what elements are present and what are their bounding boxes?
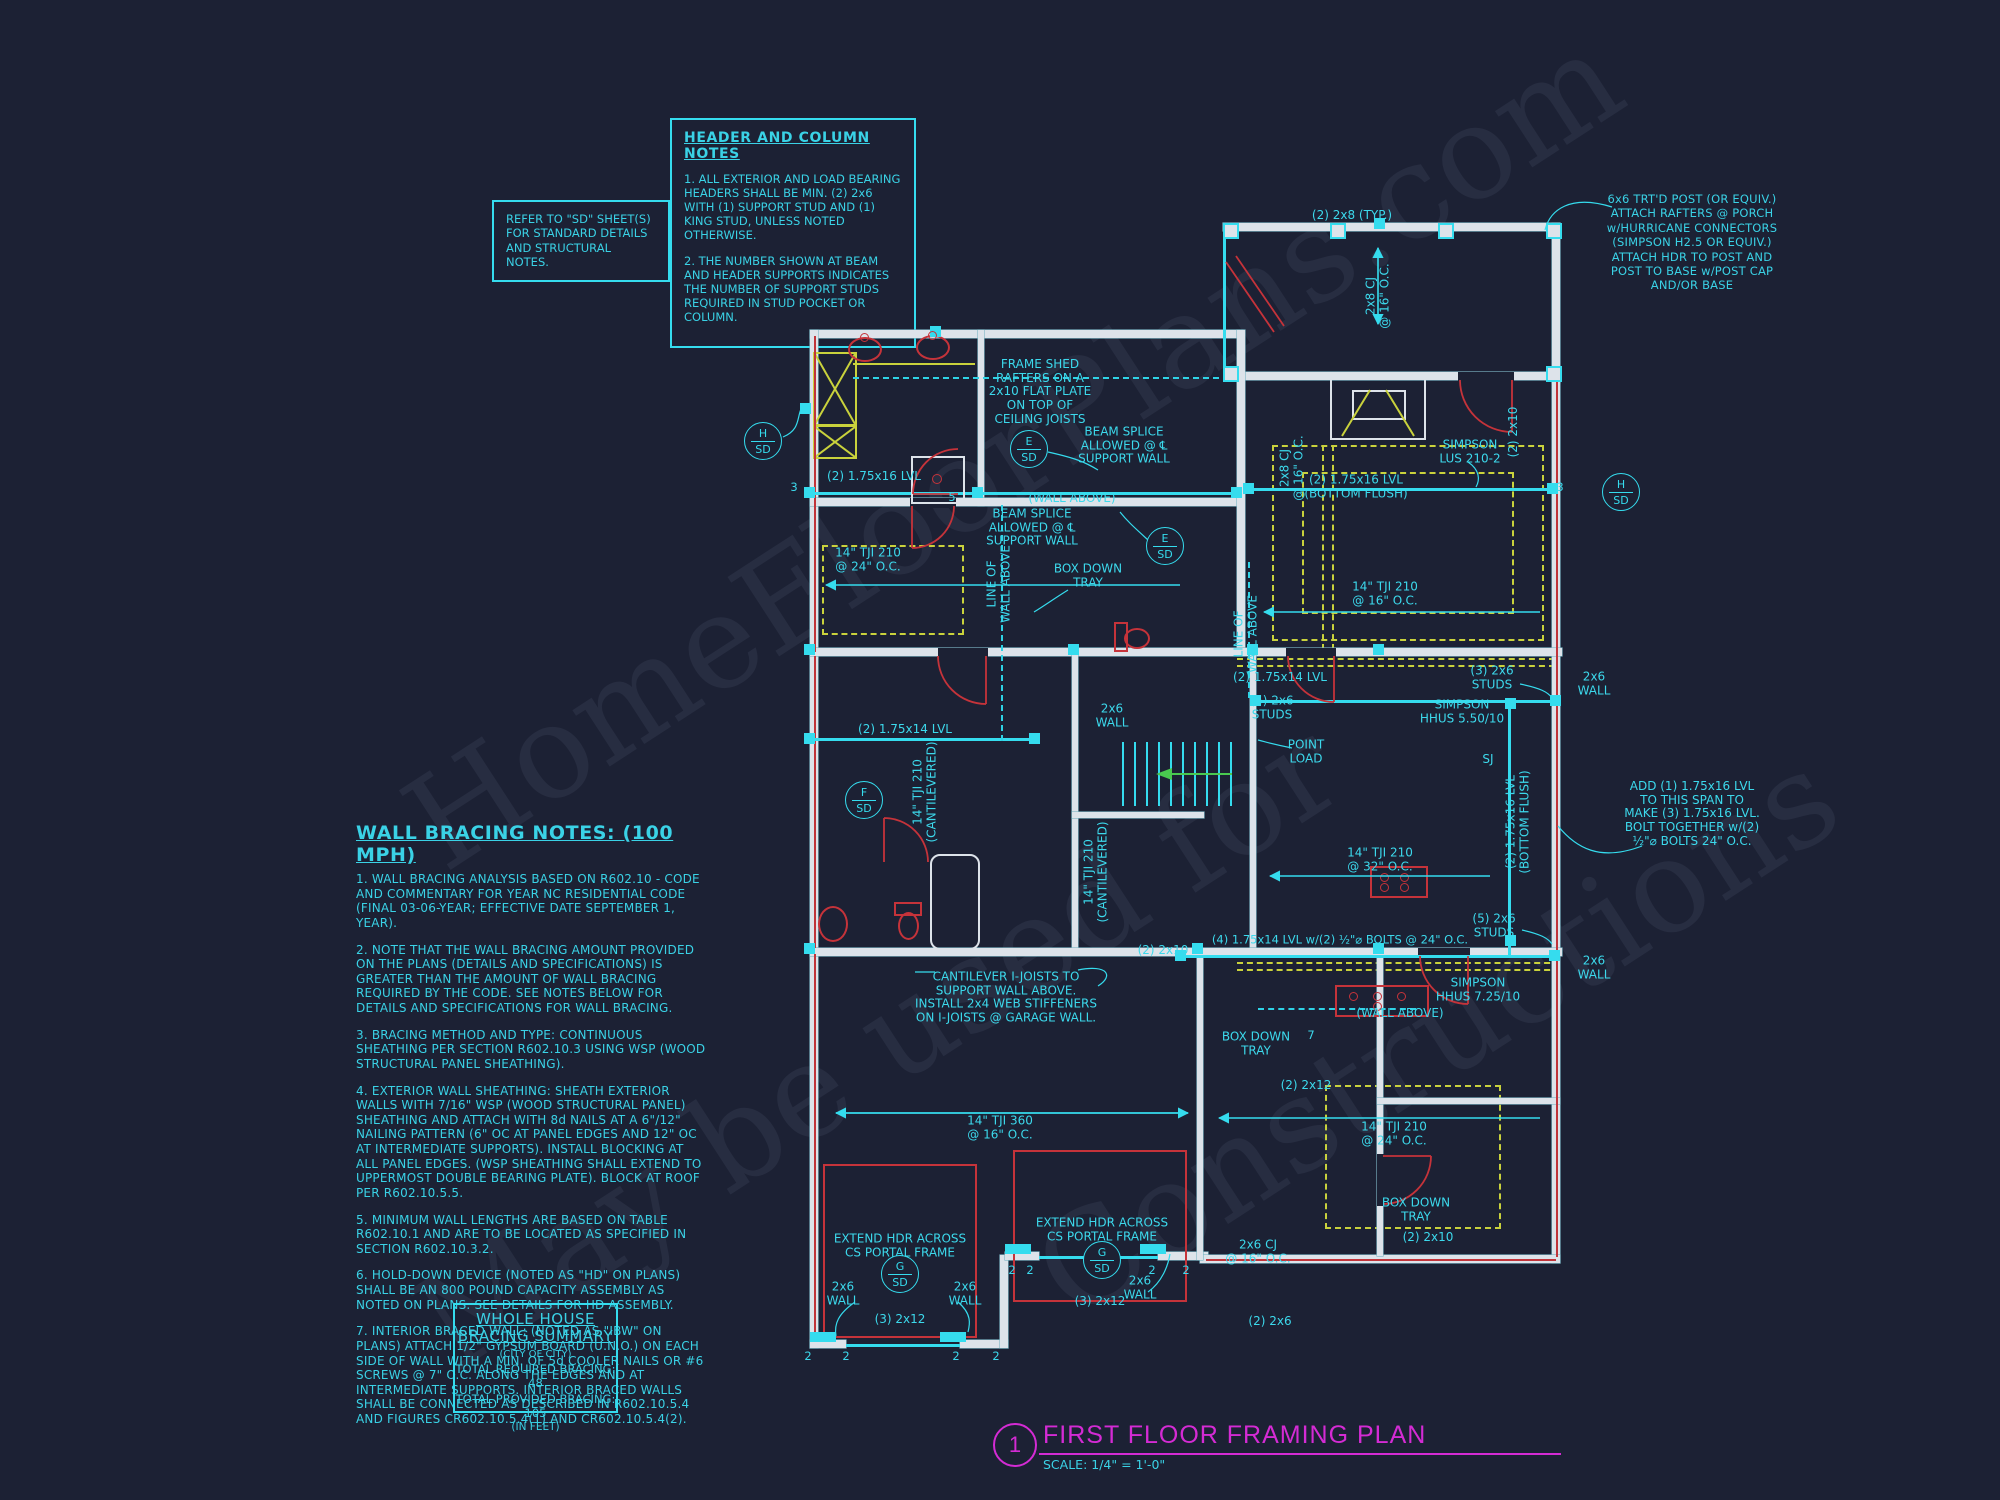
stud-count: 2: [1026, 1263, 1033, 1277]
plan-annotation: SIMPSON HHUS 5.50/10: [1420, 698, 1504, 725]
blueprint-page: { "colors":{"background":"#1c2134","cyan…: [0, 0, 2000, 1500]
stud-count: 2: [1182, 1263, 1189, 1277]
plan-annotation: (2) 2x10: [1507, 407, 1521, 458]
sheet-ref: SD: [1094, 1262, 1109, 1275]
detail-letter: G: [882, 1261, 918, 1272]
plan-annotation: POINT LOAD: [1288, 738, 1325, 765]
plan-annotation: (3) 2x6 STUDS: [1470, 664, 1513, 691]
stud-count: 7: [1307, 1028, 1314, 1042]
plan-annotation: FRAME SHED RAFTERS ON A 2x10 FLAT PLATE …: [989, 358, 1092, 426]
sheet-ref: SD: [856, 802, 871, 815]
plan-annotation: BEAM SPLICE ALLOWED @ ℄ SUPPORT WALL: [1078, 425, 1170, 466]
detail-callout-bubble: HSD: [1602, 473, 1640, 511]
stud-count: 2: [952, 1349, 959, 1363]
plan-annotation: (3) 2x12: [1075, 1295, 1126, 1309]
detail-letter: E: [1147, 533, 1183, 544]
detail-letter: F: [846, 787, 882, 798]
detail-number-bubble: 1: [993, 1423, 1037, 1467]
detail-letter: H: [1603, 479, 1639, 490]
plan-annotation: 2x6 CJ @ 16" O.C.: [1225, 1238, 1290, 1265]
plan-annotation: (3) 2x12: [875, 1313, 926, 1327]
detail-letter: H: [745, 428, 781, 439]
plan-annotation: 14" TJI 210 @ 32" O.C.: [1347, 846, 1413, 873]
plan-annotation: 14" TJI 210 @ 16" O.C.: [1352, 580, 1418, 607]
plan-annotation: (5) 2x6 STUDS: [1472, 912, 1515, 939]
detail-callout-bubble: ESD: [1010, 430, 1048, 468]
plan-annotation: SIMPSON HHUS 7.25/10: [1436, 976, 1520, 1003]
detail-letter: G: [1084, 1247, 1120, 1258]
plan-annotation: (2) 2x6: [1248, 1315, 1291, 1329]
sheet-ref: SD: [1021, 451, 1036, 464]
plan-annotation: (2) 2x10: [1138, 944, 1189, 958]
plan-annotation: (2) 1.75x16 LVL: [827, 470, 921, 484]
floor-plan: (2) 2x8 (TYP.)2x8 CJ @ 16" O.C.2x8 CJ @ …: [0, 0, 2000, 1500]
sheet-ref: SD: [1613, 494, 1628, 507]
plan-annotation: 14" TJI 210 @ 24" O.C.: [1361, 1120, 1427, 1147]
plan-annotation: (2) 1.75x16 LVL (BOTTOM FLUSH): [1304, 473, 1407, 500]
plan-annotation: 2x8 CJ @ 16" O.C.: [1278, 435, 1305, 500]
stud-count: 2: [992, 1349, 999, 1363]
stud-count: 3: [1556, 480, 1563, 494]
detail-callout-bubble: FSD: [845, 781, 883, 819]
stud-count: 2: [804, 1349, 811, 1363]
stud-count: 2: [1148, 1263, 1155, 1277]
detail-callout-bubble: GSD: [1083, 1241, 1121, 1279]
plan-annotation: 14" TJI 210 (CANTILEVERED): [911, 741, 938, 842]
plan-annotation: 2x6 WALL: [1096, 702, 1129, 729]
sheet-ref: SD: [892, 1276, 907, 1289]
title-underline: [1039, 1453, 1561, 1455]
plan-annotation: BOX DOWN TRAY: [1382, 1196, 1450, 1223]
stud-count: 5: [948, 490, 955, 504]
detail-callout-bubble: HSD: [744, 422, 782, 460]
sheet-ref: SD: [1157, 548, 1172, 561]
detail-callout-bubble: ESD: [1146, 527, 1184, 565]
detail-letter: E: [1011, 436, 1047, 447]
plan-annotation: (WALL ABOVE): [1356, 1007, 1443, 1021]
plan-annotation: (2) 2x8 (TYP.): [1312, 209, 1392, 223]
plan-annotation: SIMPSON LUS 210-2: [1439, 438, 1500, 465]
plan-annotation: 2x6 WALL: [1124, 1274, 1157, 1301]
plan-annotation: BOX DOWN TRAY: [1054, 562, 1122, 589]
page-title: FIRST FLOOR FRAMING PLAN: [1043, 1421, 1426, 1450]
plan-annotation: 2x6 WALL: [949, 1280, 982, 1307]
bubble-divider: [1017, 449, 1041, 450]
plan-annotation: (2) 2x12: [1281, 1079, 1332, 1093]
bubble-divider: [888, 1274, 912, 1275]
stud-count: 3: [790, 480, 797, 494]
door-swings: [884, 256, 1512, 1204]
plan-annotation: 2x6 WALL: [1578, 954, 1611, 981]
plan-annotation: CANTILEVER I-JOISTS TO SUPPORT WALL ABOV…: [915, 971, 1097, 1026]
plan-annotation: BOX DOWN TRAY: [1222, 1030, 1290, 1057]
bubble-divider: [1609, 492, 1633, 493]
plan-annotation: (WALL ABOVE): [1028, 492, 1115, 506]
plan-annotation: ADD (1) 1.75x16 LVL TO THIS SPAN TO MAKE…: [1624, 780, 1760, 848]
plan-annotation: 2x6 WALL: [1578, 670, 1611, 697]
bubble-divider: [852, 800, 876, 801]
plan-annotation: BEAM SPLICE ALLOWED @ ℄ SUPPORT WALL: [986, 507, 1078, 548]
plan-annotation: (2) 1.75x16 LVL (BOTTOM FLUSH): [1504, 770, 1531, 873]
plan-annotation: SJ: [1482, 753, 1493, 767]
stair-arrow: [1156, 768, 1232, 780]
scale-note: SCALE: 1/4" = 1'-0": [1043, 1457, 1165, 1472]
bubble-divider: [1153, 546, 1177, 547]
plan-linework: [0, 0, 2000, 1500]
plan-annotation: EXTEND HDR ACROSS CS PORTAL FRAME: [1036, 1216, 1168, 1243]
plan-annotation: LINE OF WALL ABOVE: [1232, 595, 1259, 673]
stud-count: 2: [1008, 1263, 1015, 1277]
bubble-divider: [1090, 1260, 1114, 1261]
bubble-divider: [751, 441, 775, 442]
plan-annotation: LINE OF WALL ABOVE: [985, 545, 1012, 623]
plan-annotation: (2) 1.75x14 LVL: [1233, 671, 1327, 685]
plan-annotation: 14" TJI 210 (CANTILEVERED): [1082, 821, 1109, 922]
plan-annotation: 2x8 CJ @ 16" O.C.: [1364, 263, 1391, 328]
sheet-ref: SD: [755, 443, 770, 456]
fireplace-flue-lines: [1342, 390, 1414, 436]
plan-annotation: 2x6 WALL: [827, 1280, 860, 1307]
stud-count: 2: [842, 1349, 849, 1363]
plan-annotation: (2) 2x10: [1403, 1231, 1454, 1245]
plan-annotation: (4) 1.75x14 LVL w/(2) ½"⌀ BOLTS @ 24" O.…: [1212, 933, 1468, 946]
plan-annotation: 14" TJI 210 @ 24" O.C.: [835, 546, 901, 573]
detail-callout-bubble: GSD: [881, 1255, 919, 1293]
plan-annotation: (5) 2x6 STUDS: [1250, 694, 1293, 721]
plan-annotation: 14" TJI 360 @ 16" O.C.: [967, 1114, 1033, 1141]
plan-annotation: (2) 1.75x14 LVL: [858, 723, 952, 737]
